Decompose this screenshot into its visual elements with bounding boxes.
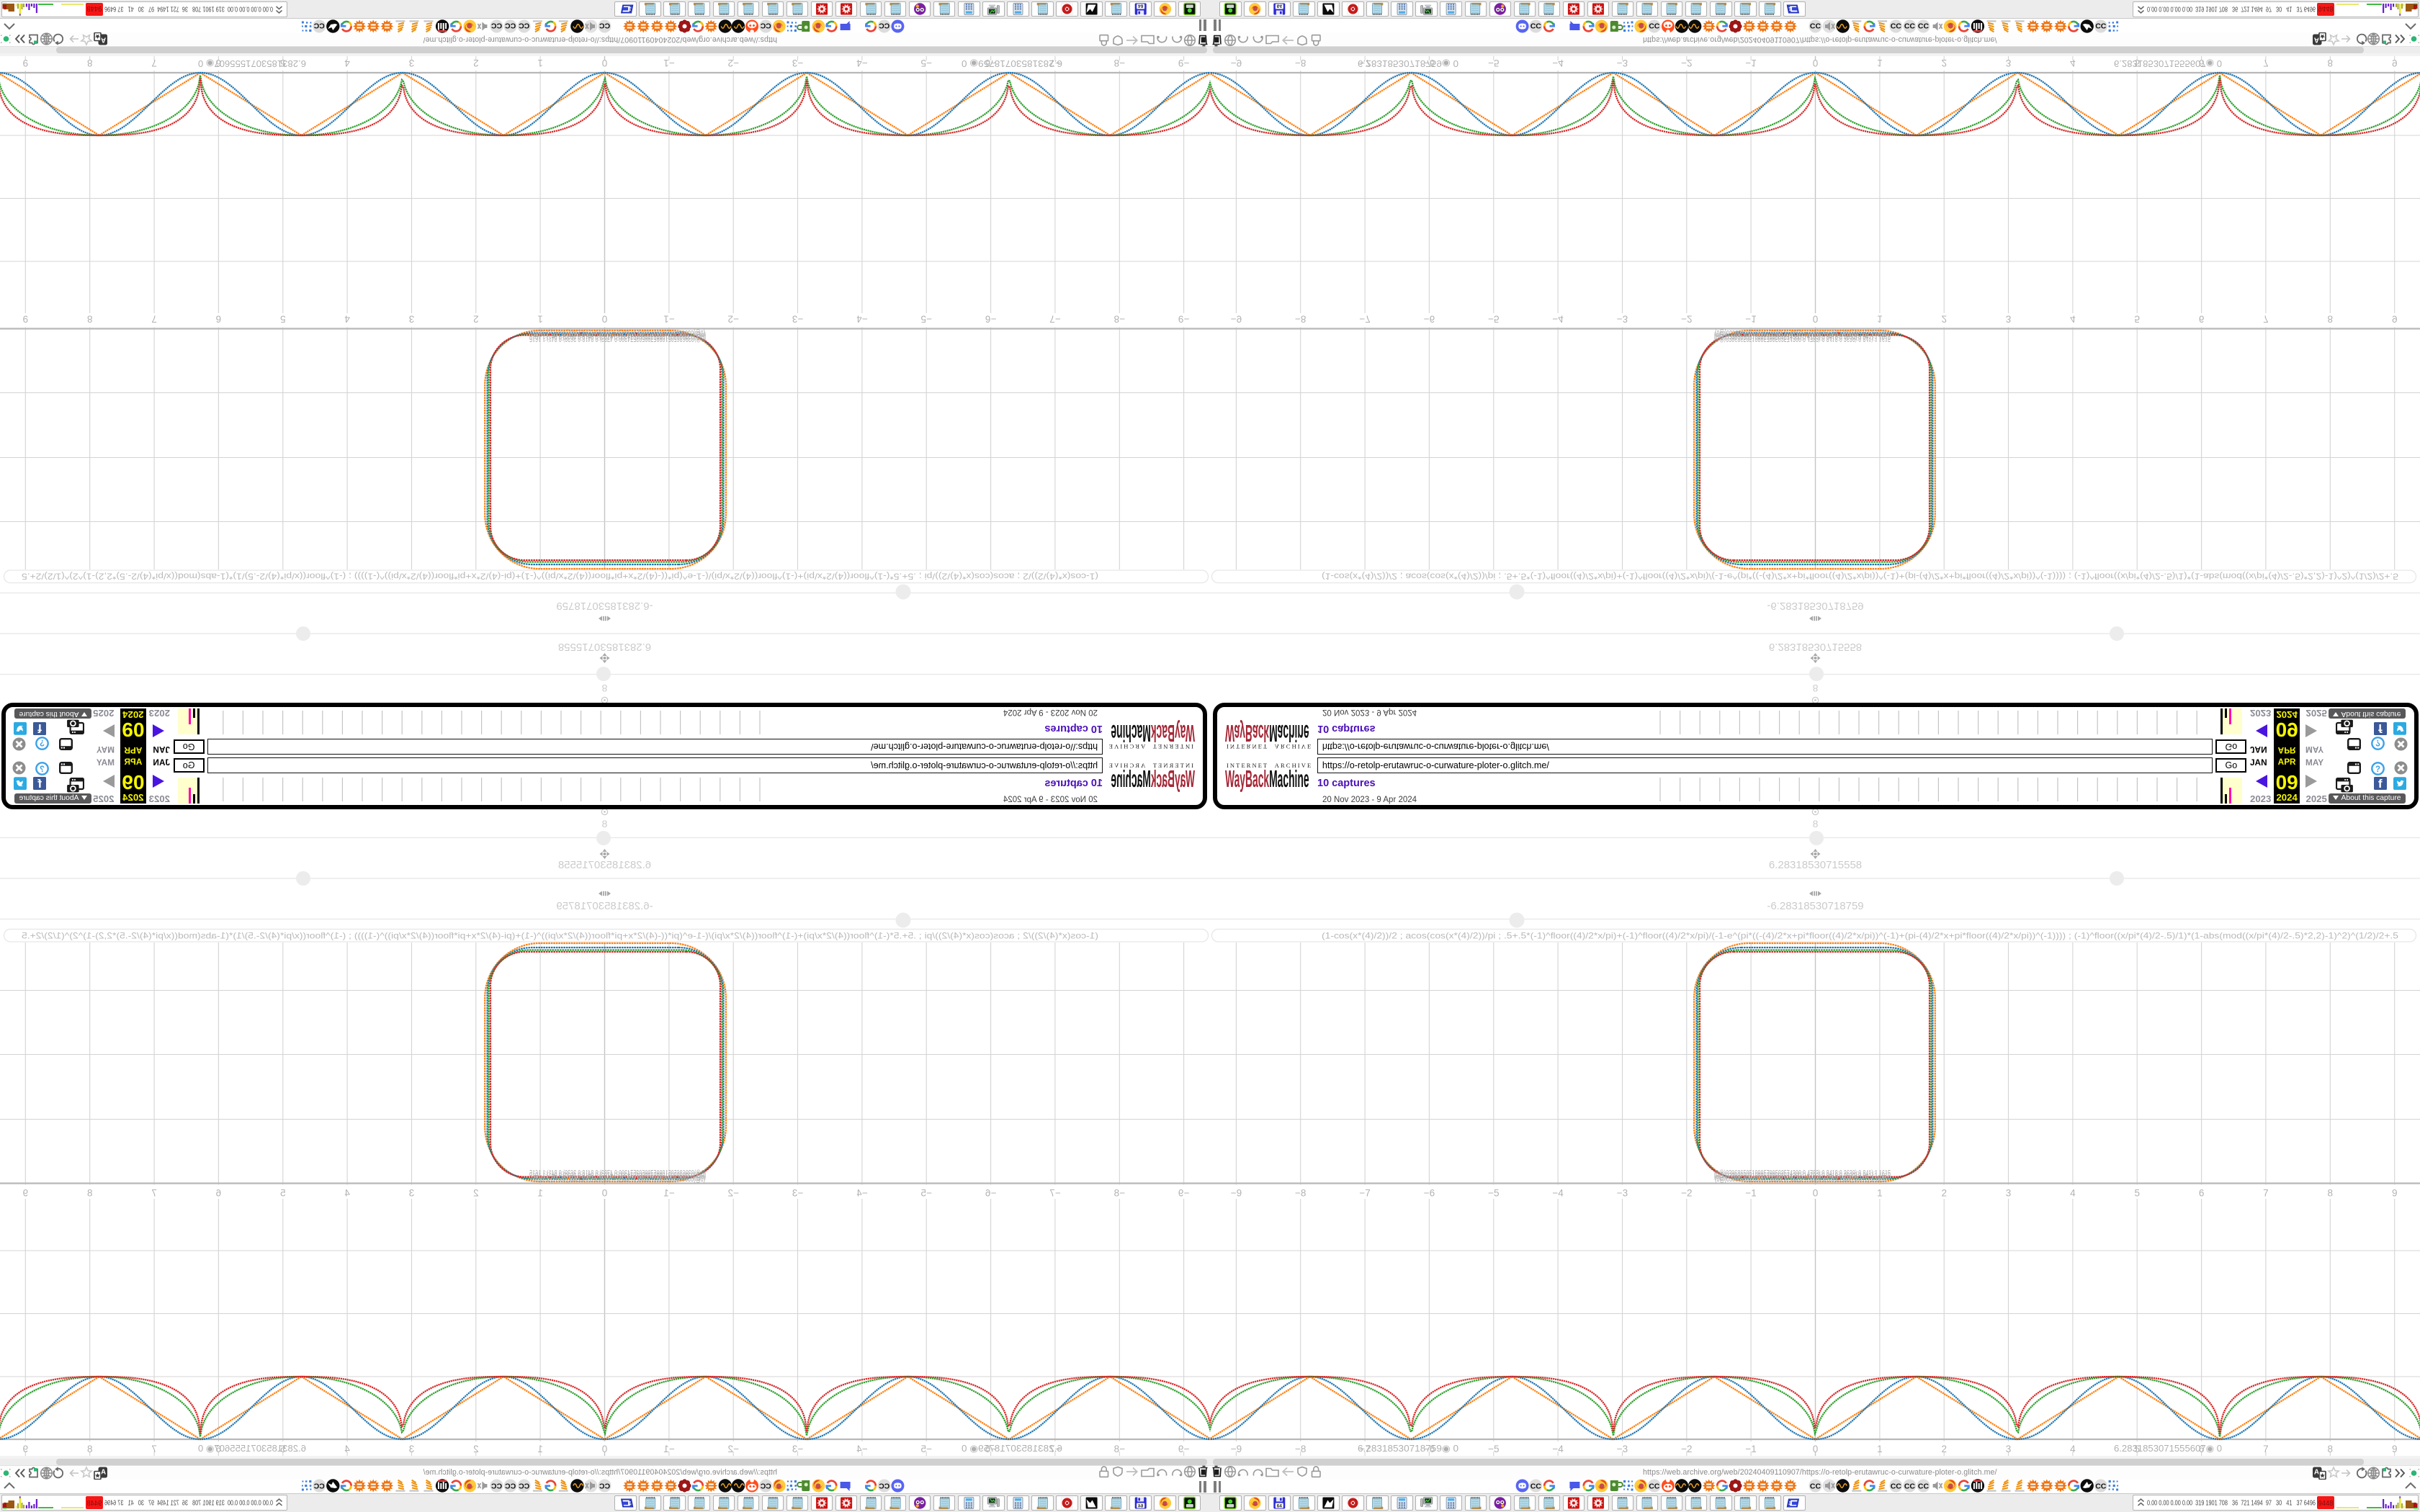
svg-text:−8: −8 [1114, 314, 1125, 325]
svg-text:2: 2 [1941, 1188, 1947, 1199]
svg-text:6.2831853071555607◉ 0: 6.2831853071555607◉ 0 [2114, 58, 2222, 69]
svg-text:−3: −3 [1617, 314, 1628, 325]
svg-text:−3: −3 [792, 1188, 803, 1199]
svg-text:−5: −5 [1488, 1188, 1499, 1199]
svg-text:9: 9 [23, 58, 29, 68]
svg-text:3: 3 [409, 1444, 415, 1454]
svg-text:0: 0 [1813, 314, 1819, 325]
svg-text:5: 5 [280, 1188, 286, 1199]
svg-text:−4: −4 [856, 1188, 868, 1199]
svg-text:−1: −1 [663, 1188, 674, 1199]
svg-text:3: 3 [2006, 1444, 2012, 1454]
svg-text:6: 6 [216, 1188, 222, 1199]
svg-text:8: 8 [87, 1444, 93, 1454]
svg-text:6.28318530718759◉ 0: 6.28318530718759◉ 0 [1358, 1443, 1458, 1454]
svg-text:-6.28318530718759: -6.28318530718759 [556, 900, 653, 912]
svg-text:(1-cos(x*(4)/2))/2 ; acos(cos(: (1-cos(x*(4)/2))/2 ; acos(cos(x*(4)/2))/… [1322, 931, 2399, 941]
svg-text:8: 8 [601, 683, 607, 694]
svg-text:9: 9 [23, 1188, 29, 1199]
svg-text:−2: −2 [1681, 58, 1692, 68]
svg-text:1: 1 [537, 58, 543, 68]
svg-text:−9: −9 [1178, 1444, 1189, 1454]
svg-text:7: 7 [2263, 58, 2269, 68]
svg-text:8: 8 [2328, 314, 2334, 325]
svg-text:−1: −1 [663, 314, 674, 325]
svg-text:−4: −4 [1552, 1188, 1564, 1199]
svg-text:9: 9 [2392, 58, 2398, 68]
svg-text:2: 2 [473, 1444, 479, 1454]
svg-text:-6.28318530718759: -6.28318530718759 [1767, 600, 1863, 612]
svg-text:9: 9 [2392, 1188, 2398, 1199]
svg-text:(1-cos(x*(4)/2))/2 ; acos(cos(: (1-cos(x*(4)/2))/2 ; acos(cos(x*(4)/2))/… [21, 931, 1098, 941]
svg-text:9: 9 [23, 314, 29, 325]
svg-text:7: 7 [151, 1188, 157, 1199]
svg-text:2: 2 [473, 314, 479, 325]
svg-text:−1: −1 [1745, 1444, 1756, 1454]
svg-text:−3: −3 [792, 58, 803, 68]
svg-text:8: 8 [601, 818, 607, 829]
svg-text:−9: −9 [1231, 1444, 1242, 1454]
svg-text:7: 7 [2263, 314, 2269, 325]
svg-text:−9: −9 [1231, 1188, 1242, 1199]
svg-text:8: 8 [1813, 683, 1819, 694]
svg-text:−3: −3 [1617, 58, 1628, 68]
svg-text:0: 0 [1813, 1444, 1819, 1454]
svg-text:4: 4 [2070, 1444, 2076, 1454]
svg-text:6.2831853071555607◉ 0: 6.2831853071555607◉ 0 [198, 1443, 306, 1454]
svg-text:−2: −2 [727, 1444, 738, 1454]
svg-text:6.28318530715558: 6.28318530715558 [558, 641, 651, 653]
svg-text:(0@)0396865051099579950257430;: (0@)0396865051099579950257430;0.4788);0.… [534, 1174, 705, 1184]
svg-text:−4: −4 [856, 1444, 868, 1454]
svg-text:−4: −4 [856, 314, 868, 325]
svg-text:−6: −6 [1424, 1188, 1435, 1199]
svg-text:−2: −2 [1681, 1444, 1692, 1454]
svg-text:3: 3 [409, 1188, 415, 1199]
svg-text:6: 6 [2199, 1188, 2205, 1199]
svg-text:−7: −7 [1359, 1188, 1370, 1199]
svg-text:1: 1 [1877, 1444, 1883, 1454]
svg-text:1: 1 [1877, 314, 1883, 325]
svg-text:9: 9 [2392, 314, 2398, 325]
svg-text:3: 3 [409, 58, 415, 68]
svg-text:−9: −9 [1178, 58, 1189, 68]
svg-text:−4: −4 [856, 58, 868, 68]
svg-text:0: 0 [602, 58, 608, 68]
svg-text:1: 1 [537, 1188, 543, 1199]
svg-text:7: 7 [151, 314, 157, 325]
svg-text:5: 5 [2134, 1188, 2140, 1199]
svg-text:−4: −4 [1552, 314, 1564, 325]
svg-text:4: 4 [344, 314, 350, 325]
svg-text:3: 3 [409, 314, 415, 325]
svg-text:9: 9 [2392, 1444, 2398, 1454]
svg-text:4: 4 [2070, 314, 2076, 325]
svg-text:(1-cos(x*(4)/2))/2 ; acos(cos(: (1-cos(x*(4)/2))/2 ; acos(cos(x*(4)/2))/… [1322, 572, 2399, 582]
svg-text:8: 8 [1813, 818, 1819, 829]
svg-text:−8: −8 [1295, 314, 1306, 325]
svg-text:0: 0 [1813, 1188, 1819, 1199]
svg-text:1: 1 [1877, 1188, 1883, 1199]
svg-text:6: 6 [2199, 314, 2205, 325]
svg-text:7: 7 [2263, 1188, 2269, 1199]
svg-text:2: 2 [1941, 1444, 1947, 1454]
svg-text:2: 2 [473, 1188, 479, 1199]
svg-text:−9: −9 [1231, 314, 1242, 325]
svg-text:0: 0 [602, 314, 608, 325]
svg-text:−8: −8 [1295, 1188, 1306, 1199]
svg-text:5: 5 [280, 314, 286, 325]
svg-text:(0@)0396865051099579950257430;: (0@)0396865051099579950257430;0.4788);0.… [1715, 328, 1886, 338]
svg-text:−2: −2 [727, 1188, 738, 1199]
svg-text:1: 1 [1877, 58, 1883, 68]
svg-text:−3: −3 [792, 1444, 803, 1454]
svg-text:6: 6 [216, 314, 222, 325]
svg-text:7: 7 [151, 1444, 157, 1454]
svg-text:5: 5 [2134, 314, 2140, 325]
svg-text:−5: −5 [920, 58, 931, 68]
svg-text:4: 4 [344, 1188, 350, 1199]
svg-text:−7: −7 [1359, 314, 1370, 325]
svg-text:−8: −8 [1295, 1444, 1306, 1454]
svg-text:6.28318530718759◉ 0: 6.28318530718759◉ 0 [1358, 58, 1458, 69]
svg-text:−8: −8 [1114, 1188, 1125, 1199]
svg-text:−5: −5 [1488, 1444, 1499, 1454]
svg-text:−9: −9 [1178, 1188, 1189, 1199]
svg-text:−1: −1 [1745, 58, 1756, 68]
svg-text:−5: −5 [1488, 314, 1499, 325]
svg-text:7: 7 [151, 58, 157, 68]
svg-text:−7: −7 [1049, 1188, 1060, 1199]
svg-text:−1: −1 [663, 58, 674, 68]
svg-text:−4: −4 [1552, 58, 1564, 68]
svg-text:6.28318530715558: 6.28318530715558 [1769, 641, 1862, 653]
svg-text:−8: −8 [1114, 1444, 1125, 1454]
svg-text:−5: −5 [920, 1188, 931, 1199]
svg-text:8: 8 [87, 314, 93, 325]
svg-text:-6.28318530718759: -6.28318530718759 [556, 600, 653, 612]
svg-text:0: 0 [602, 1188, 608, 1199]
svg-text:(0@)0396865051099579950257430;: (0@)0396865051099579950257430;0.4788);0.… [534, 328, 705, 338]
svg-text:-6.28318530718759: -6.28318530718759 [1767, 900, 1863, 912]
svg-text:6.28318530715558: 6.28318530715558 [558, 859, 651, 871]
svg-text:6.28318530718759◉ 0: 6.28318530718759◉ 0 [962, 1443, 1062, 1454]
svg-text:4: 4 [344, 58, 350, 68]
svg-text:−2: −2 [727, 58, 738, 68]
svg-text:3: 3 [2006, 1188, 2012, 1199]
svg-text:8: 8 [2328, 1444, 2334, 1454]
svg-text:(0@)0396865051099579950257430;: (0@)0396865051099579950257430;0.4788);0.… [1715, 1174, 1886, 1184]
svg-text:(1-cos(x*(4)/2))/2 ; acos(cos(: (1-cos(x*(4)/2))/2 ; acos(cos(x*(4)/2))/… [21, 572, 1098, 582]
svg-text:2: 2 [1941, 58, 1947, 68]
svg-text:0: 0 [1813, 58, 1819, 68]
svg-text:−1: −1 [1745, 1188, 1756, 1199]
svg-text:−5: −5 [1488, 58, 1499, 68]
svg-text:8: 8 [2328, 1188, 2334, 1199]
svg-text:1: 1 [537, 314, 543, 325]
svg-text:3: 3 [2006, 314, 2012, 325]
svg-text:6.2831853071555607◉ 0: 6.2831853071555607◉ 0 [2114, 1443, 2222, 1454]
svg-text:−8: −8 [1295, 58, 1306, 68]
svg-text:2: 2 [1941, 314, 1947, 325]
svg-text:−6: −6 [1424, 314, 1435, 325]
svg-text:6.2831853071555607◉ 0: 6.2831853071555607◉ 0 [198, 58, 306, 69]
svg-text:6.28318530718759◉ 0: 6.28318530718759◉ 0 [962, 58, 1062, 69]
svg-text:−7: −7 [1049, 314, 1060, 325]
svg-text:6.28318530715558: 6.28318530715558 [1769, 859, 1862, 871]
svg-text:−3: −3 [1617, 1444, 1628, 1454]
svg-text:2: 2 [473, 58, 479, 68]
svg-text:1: 1 [537, 1444, 543, 1454]
svg-text:−5: −5 [920, 314, 931, 325]
svg-text:−9: −9 [1178, 314, 1189, 325]
svg-text:−2: −2 [727, 314, 738, 325]
svg-text:−4: −4 [1552, 1444, 1564, 1454]
svg-text:−6: −6 [985, 314, 996, 325]
svg-text:4: 4 [2070, 58, 2076, 68]
svg-text:0: 0 [602, 1444, 608, 1454]
svg-text:−3: −3 [1617, 1188, 1628, 1199]
svg-text:9: 9 [23, 1444, 29, 1454]
svg-text:−2: −2 [1681, 1188, 1692, 1199]
svg-text:−3: −3 [792, 314, 803, 325]
svg-text:7: 7 [2263, 1444, 2269, 1454]
svg-text:−1: −1 [1745, 314, 1756, 325]
svg-text:−1: −1 [663, 1444, 674, 1454]
svg-text:8: 8 [87, 1188, 93, 1199]
svg-text:−2: −2 [1681, 314, 1692, 325]
svg-text:−6: −6 [985, 1188, 996, 1199]
svg-text:4: 4 [344, 1444, 350, 1454]
svg-text:−9: −9 [1231, 58, 1242, 68]
svg-text:4: 4 [2070, 1188, 2076, 1199]
svg-text:8: 8 [87, 58, 93, 68]
svg-text:3: 3 [2006, 58, 2012, 68]
svg-text:−8: −8 [1114, 58, 1125, 68]
svg-text:8: 8 [2328, 58, 2334, 68]
svg-text:−5: −5 [920, 1444, 931, 1454]
